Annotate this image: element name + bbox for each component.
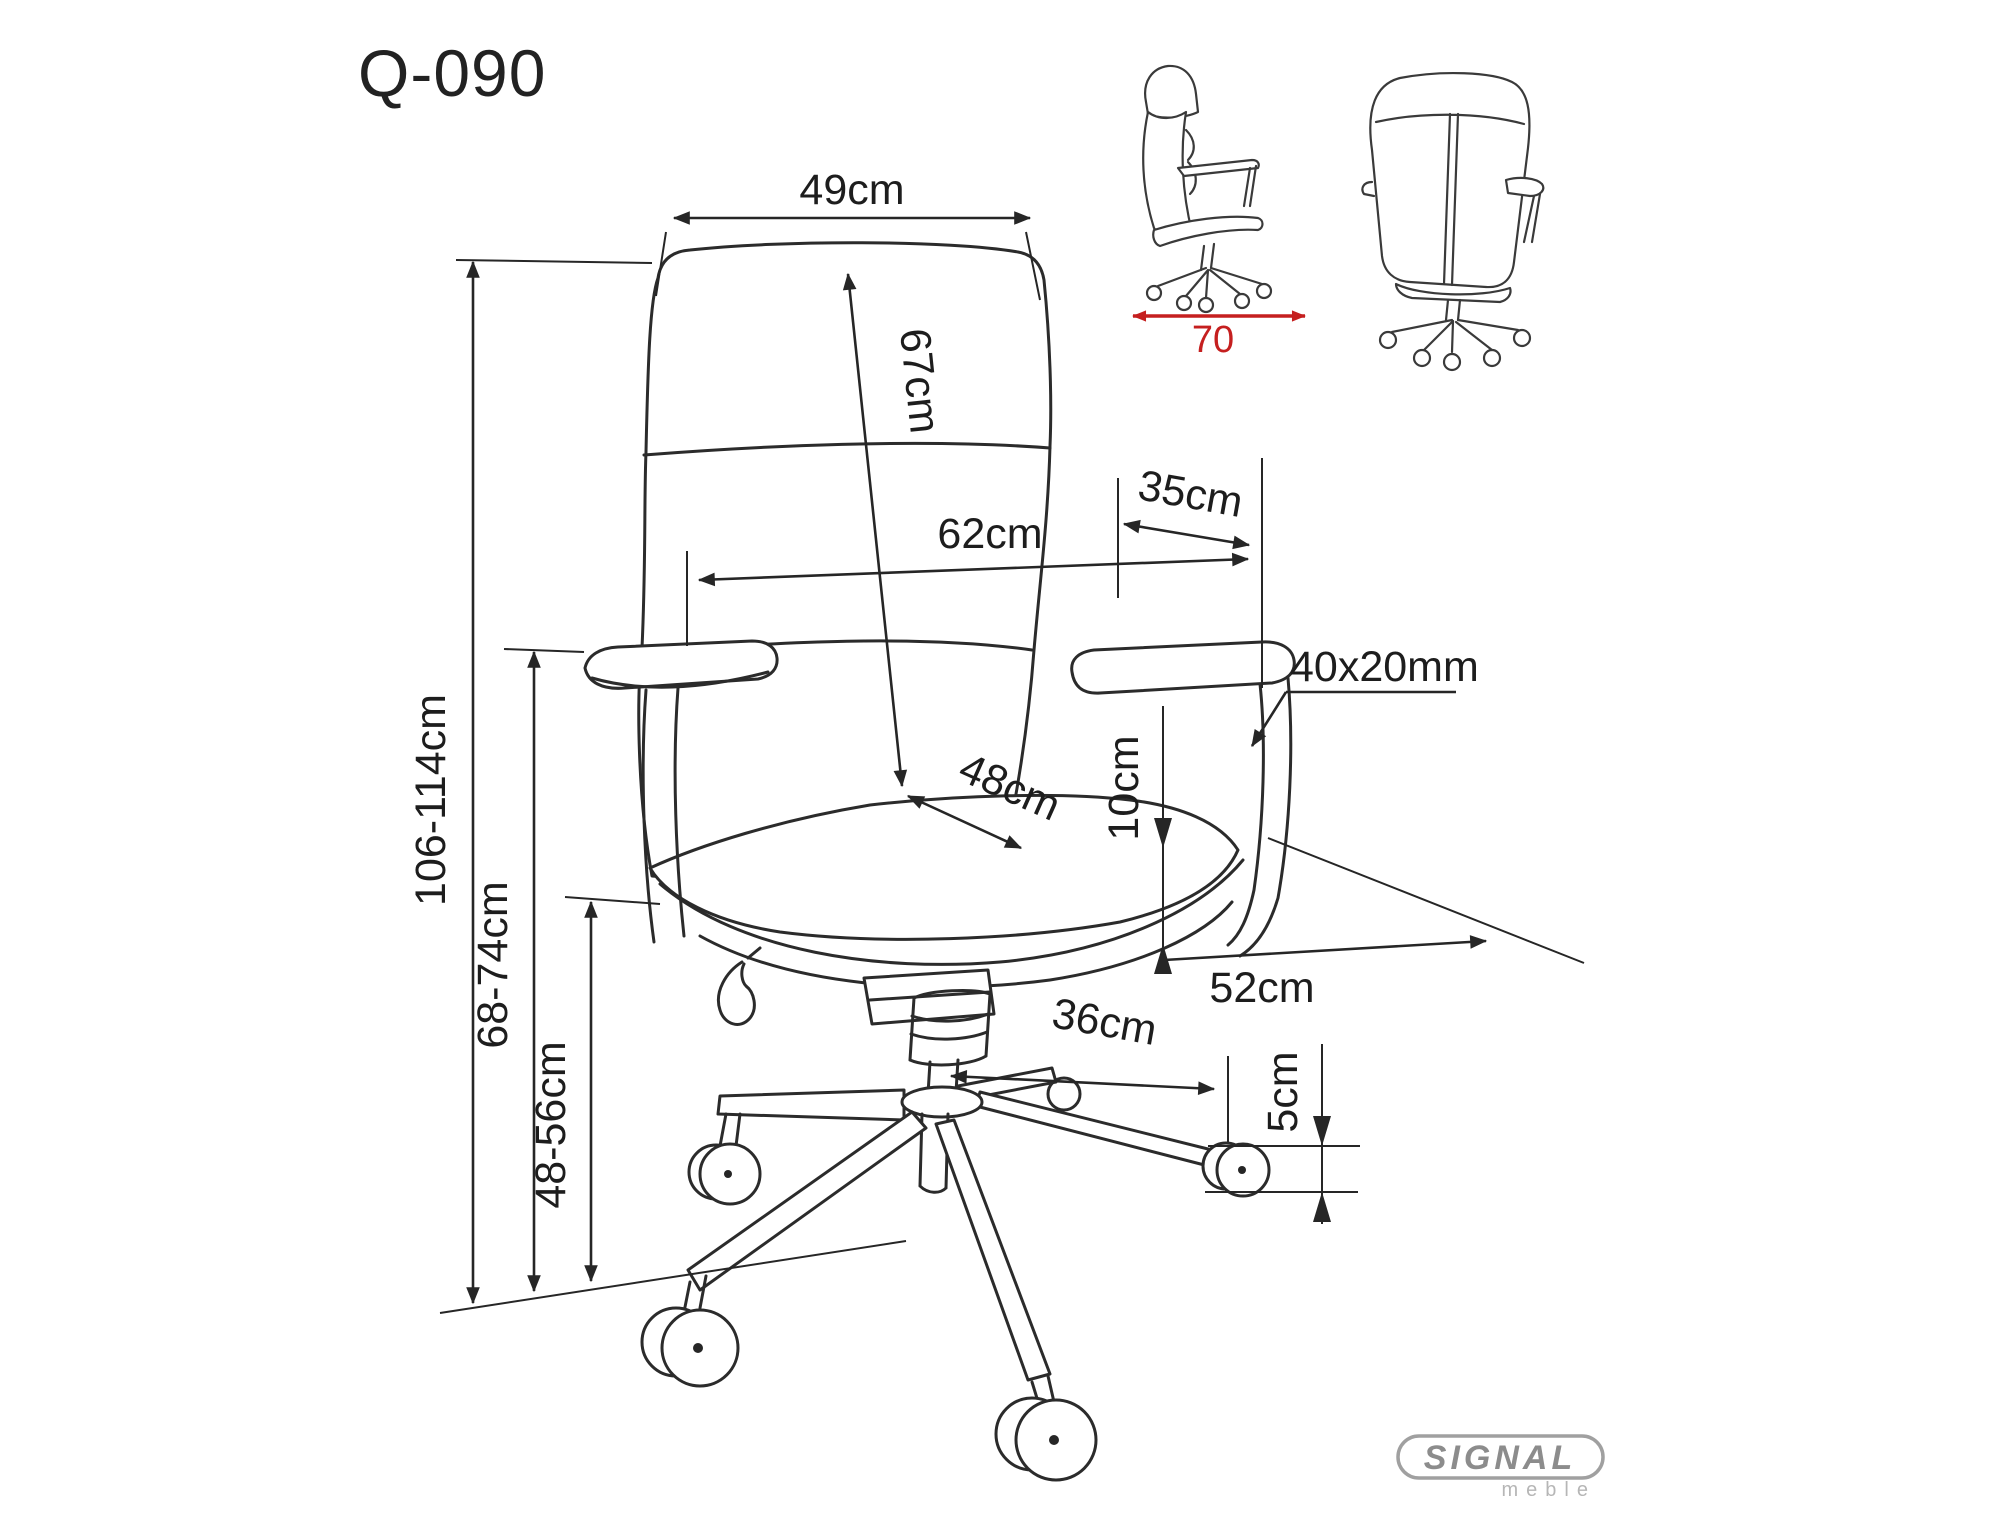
logo-brand-sub: meble xyxy=(1502,1479,1596,1501)
page-title: Q-090 xyxy=(358,36,546,110)
total-width-label: 62cm xyxy=(937,510,1042,558)
dim-seat-side-thickness: 10cm xyxy=(1100,706,1172,974)
armrest-length-label: 35cm xyxy=(1134,461,1246,527)
caster-right xyxy=(1203,1143,1269,1196)
caster-height-label: 5cm xyxy=(1259,1051,1307,1132)
technical-drawing-canvas: Q-090 xyxy=(0,0,2000,1530)
backrest-width-label: 49cm xyxy=(799,166,904,214)
logo-brand-name: SIGNAL xyxy=(1424,1439,1576,1477)
dim-seat-height: 48-56cm xyxy=(527,897,660,1281)
thumbnail-back-view xyxy=(1362,73,1543,370)
dim-armrest-length: 35cm xyxy=(1118,461,1249,598)
seat-side-thickness-label: 10cm xyxy=(1100,735,1148,840)
dim-overall-depth: 70 xyxy=(1133,316,1305,361)
dim-seat-depth: 52cm xyxy=(1164,941,1486,1012)
base-arm-front-center xyxy=(936,1120,1050,1380)
base-arm-right xyxy=(976,1092,1220,1168)
seat-height-label: 48-56cm xyxy=(527,1041,575,1208)
base-radius-label: 36cm xyxy=(1048,989,1160,1055)
base-arm-back-left xyxy=(718,1090,904,1120)
chair-drawing xyxy=(440,243,1584,1480)
caster-front-center xyxy=(996,1376,1096,1480)
floor-line-left xyxy=(440,1241,906,1313)
overall-depth-label: 70 xyxy=(1192,319,1234,361)
seat-depth-label: 52cm xyxy=(1209,964,1314,1012)
armrest-height-label: 68-74cm xyxy=(469,881,517,1048)
back-view-casters xyxy=(1380,330,1530,370)
caster-back-left xyxy=(689,1114,760,1204)
caster-front-left xyxy=(642,1276,738,1386)
thumbnail-side-view xyxy=(1143,66,1271,312)
side-view-casters xyxy=(1147,284,1271,312)
armrest-profile-label: 40x20mm xyxy=(1290,643,1479,691)
brand-logo: SIGNAL meble xyxy=(1398,1436,1603,1501)
total-height-label: 106-114cm xyxy=(407,694,455,906)
